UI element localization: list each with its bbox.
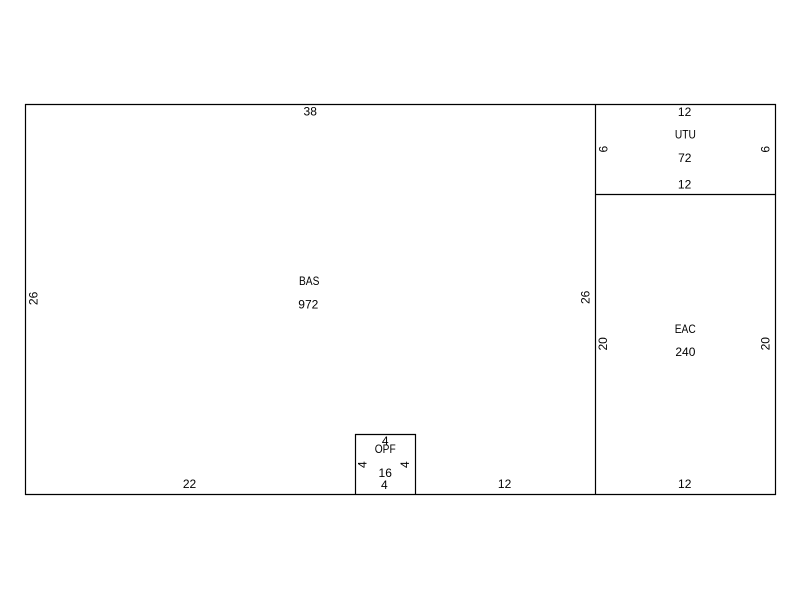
- svg-text:4: 4: [356, 461, 370, 468]
- svg-text:12: 12: [498, 477, 512, 491]
- svg-text:4: 4: [381, 478, 388, 492]
- svg-text:240: 240: [675, 345, 695, 359]
- svg-text:972: 972: [298, 297, 318, 311]
- svg-text:20: 20: [596, 337, 610, 351]
- svg-text:26: 26: [578, 290, 592, 304]
- svg-text:26: 26: [27, 291, 41, 305]
- svg-text:6: 6: [758, 146, 772, 153]
- svg-text:12: 12: [678, 178, 692, 192]
- svg-text:6: 6: [596, 145, 610, 152]
- svg-text:4: 4: [398, 461, 412, 468]
- svg-text:20: 20: [759, 337, 773, 351]
- svg-text:EAC: EAC: [675, 323, 696, 336]
- svg-text:72: 72: [678, 151, 692, 165]
- svg-text:38: 38: [304, 105, 318, 119]
- svg-text:BAS: BAS: [299, 275, 319, 288]
- svg-text:UTU: UTU: [675, 129, 696, 142]
- svg-text:12: 12: [678, 477, 692, 491]
- svg-text:OPF: OPF: [375, 443, 396, 456]
- svg-text:12: 12: [678, 105, 692, 119]
- svg-text:22: 22: [183, 477, 197, 491]
